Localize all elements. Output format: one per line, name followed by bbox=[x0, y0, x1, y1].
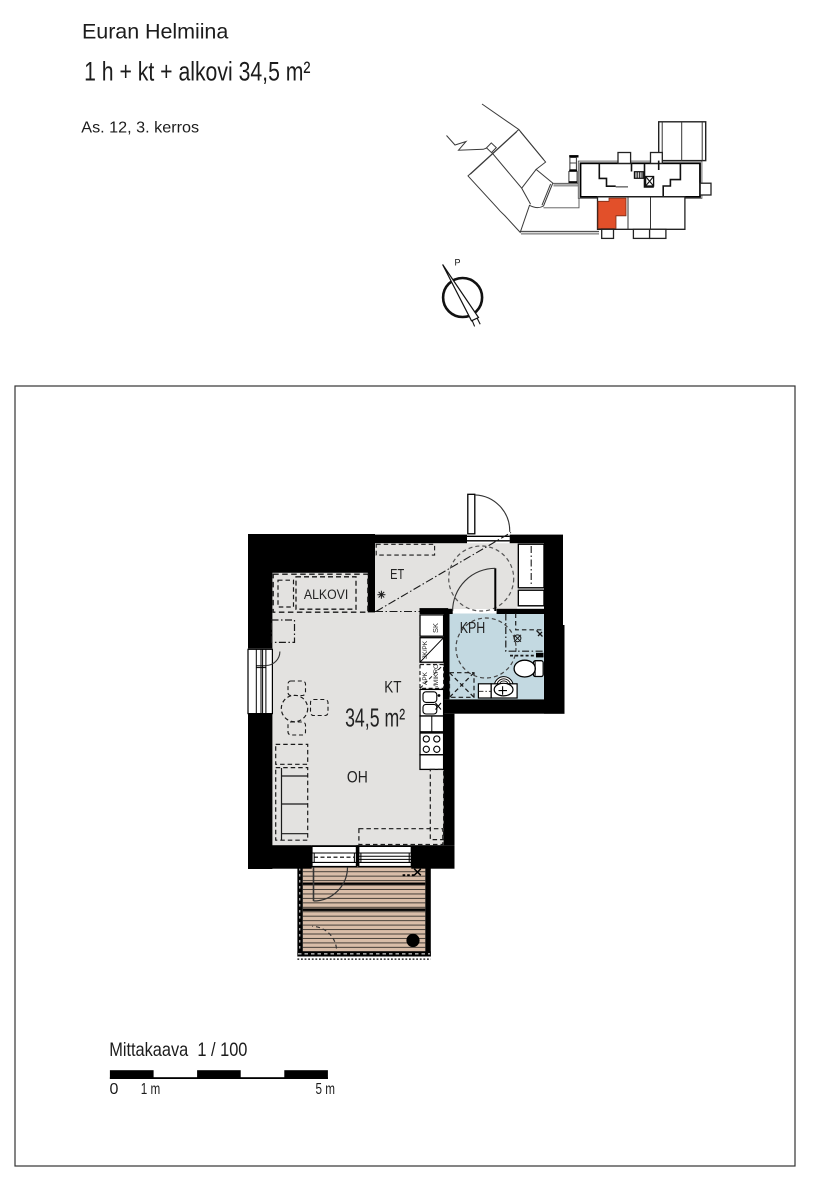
svg-text:5 m: 5 m bbox=[316, 1081, 336, 1098]
svg-text:34,5 m²: 34,5 m² bbox=[345, 703, 405, 733]
svg-text:/MIKRO: /MIKRO bbox=[433, 664, 440, 687]
svg-text:KT: KT bbox=[384, 678, 401, 697]
svg-text:Euran Helmiina: Euran Helmiina bbox=[82, 20, 228, 44]
svg-text:P: P bbox=[455, 257, 461, 267]
svg-text:JK/PK: JK/PK bbox=[422, 640, 429, 659]
svg-text:1 h + kt + alkovi 34,5 m²: 1 h + kt + alkovi 34,5 m² bbox=[84, 56, 310, 86]
svg-text:OH: OH bbox=[347, 768, 368, 786]
svg-text:Mittakaava 1 / 100: Mittakaava 1 / 100 bbox=[109, 1040, 247, 1061]
svg-text:SK: SK bbox=[431, 623, 440, 633]
svg-text:ALKOVI: ALKOVI bbox=[304, 587, 348, 602]
svg-text:As. 12, 3. kerros: As. 12, 3. kerros bbox=[81, 119, 199, 136]
svg-text:1 m: 1 m bbox=[141, 1081, 161, 1098]
svg-text:ET: ET bbox=[390, 566, 404, 583]
svg-text:APK: APK bbox=[422, 671, 429, 685]
svg-text:0: 0 bbox=[110, 1081, 119, 1098]
